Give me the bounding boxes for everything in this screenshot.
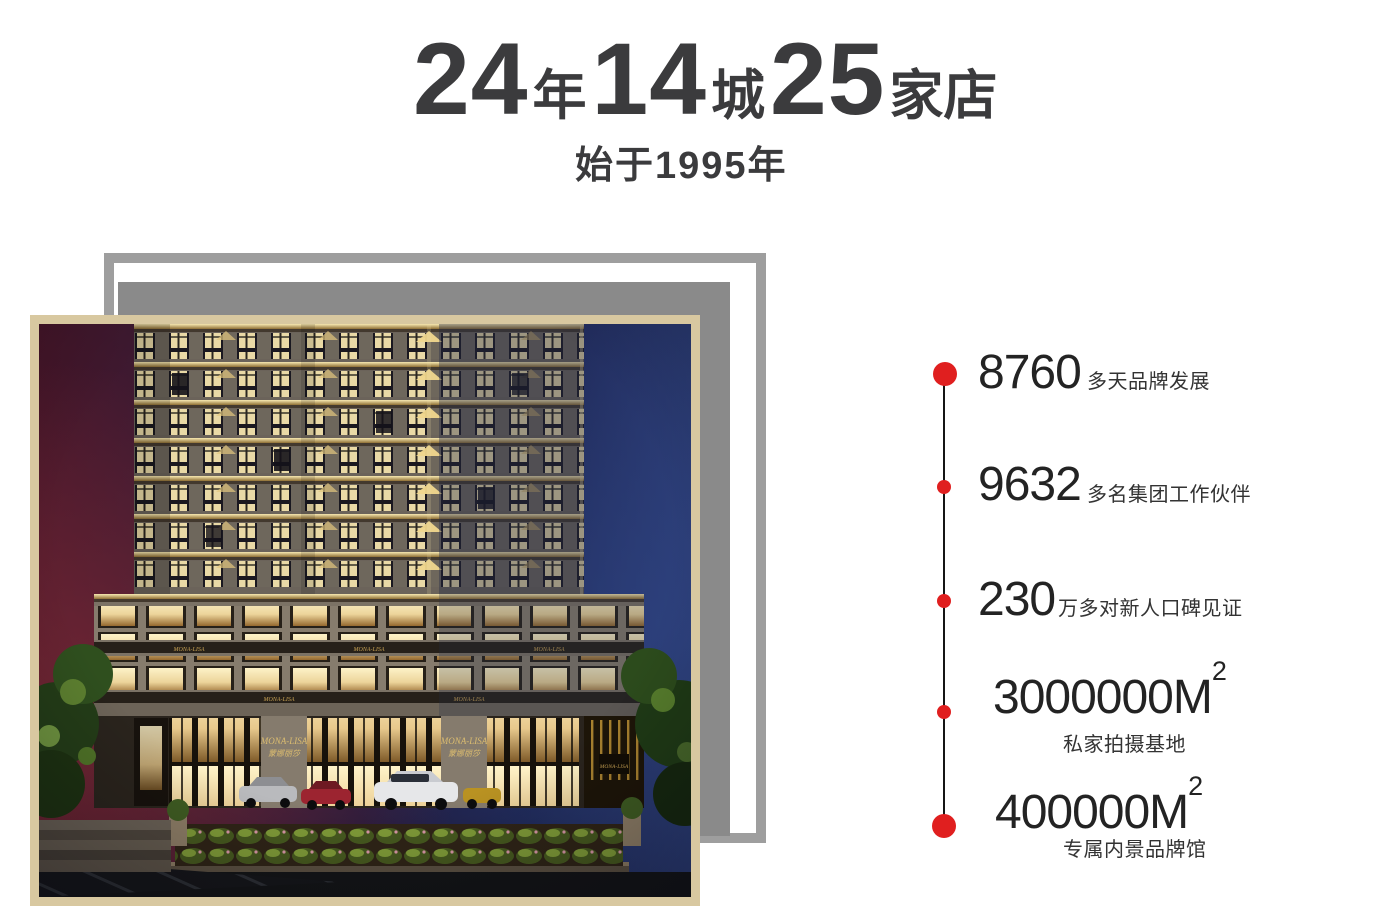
stat-value-main: 400000M [995, 786, 1188, 839]
title-number: 25 [770, 22, 885, 136]
timeline-dot [937, 594, 951, 608]
timeline-dot [932, 814, 956, 838]
photo-vignette [39, 324, 691, 897]
page-subtitle: 始于1995年 [575, 147, 788, 185]
building-photo-art: MONA-LISA MONA-LISA MONA-LISA MONA-LISA … [39, 324, 691, 897]
stat-value: 400000M2 [995, 789, 1203, 837]
title-number: 24 [413, 22, 528, 136]
stat-label: 专属内景品牌馆 [1063, 839, 1207, 861]
stat-value: 230 [978, 576, 1055, 624]
title-unit: 城 [711, 66, 765, 126]
page: 24年14城25家店 始于1995年 [0, 0, 1382, 921]
stat-value-sup: 2 [1212, 656, 1227, 686]
stat-label: 私家拍摄基地 [1063, 734, 1186, 756]
timeline-dot [937, 705, 951, 719]
stat-value: 8760 [978, 349, 1081, 397]
stat-label: 多名集团工作伙伴 [1087, 484, 1251, 506]
timeline-dot [933, 362, 957, 386]
title-number: 14 [591, 22, 706, 136]
stat-value-main: 3000000M [993, 671, 1212, 724]
stat-value: 9632 [978, 461, 1081, 509]
stat-value: 3000000M2 [993, 674, 1227, 722]
title-unit: 年 [532, 66, 586, 126]
building-photo: MONA-LISA MONA-LISA MONA-LISA MONA-LISA … [30, 315, 700, 906]
stat-label: 万多对新人口碑见证 [1058, 598, 1243, 620]
stat-value-sup: 2 [1188, 771, 1203, 801]
stat-label: 多天品牌发展 [1087, 371, 1210, 393]
title-unit: 家店 [889, 66, 997, 126]
timeline-dot [937, 480, 951, 494]
page-title: 24年14城25家店 [413, 28, 1002, 130]
